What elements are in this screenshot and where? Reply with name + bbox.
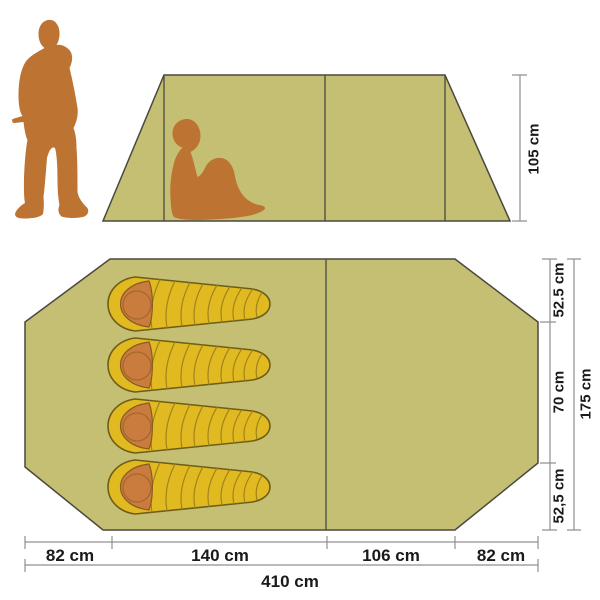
tent-floor-plan — [25, 259, 538, 530]
depth-segment-label-3: 52,5 cm — [551, 468, 568, 523]
height-dimension: 105 cm — [512, 75, 543, 221]
depth-total-label: 175 cm — [578, 369, 595, 420]
width-segment-label-2: 140 cm — [191, 546, 249, 565]
depth-segment-label-1: 52.5 cm — [551, 262, 568, 317]
depth-dimensions: 52.5 cm 70 cm 52,5 cm 175 cm — [540, 259, 595, 530]
width-dimensions: 82 cm 140 cm 106 cm 82 cm 410 cm — [25, 536, 538, 591]
height-dimension-label: 105 cm — [526, 124, 543, 175]
diagram-canvas: 105 cm 52.5 cm 70 cm 52,5 cm 175 cm 82 c… — [0, 0, 600, 600]
depth-segment-label-2: 70 cm — [551, 371, 568, 414]
tent-dimensions-diagram: 105 cm 52.5 cm 70 cm 52,5 cm 175 cm 82 c… — [0, 0, 600, 600]
tent-floor-outline — [25, 259, 538, 530]
standing-person — [12, 20, 88, 219]
width-segment-label-1: 82 cm — [46, 546, 94, 565]
width-segment-label-3: 106 cm — [362, 546, 420, 565]
standing-person-silhouette — [12, 20, 88, 219]
tent-side-view — [103, 75, 510, 221]
width-total-label: 410 cm — [261, 572, 319, 591]
width-segment-label-4: 82 cm — [477, 546, 525, 565]
